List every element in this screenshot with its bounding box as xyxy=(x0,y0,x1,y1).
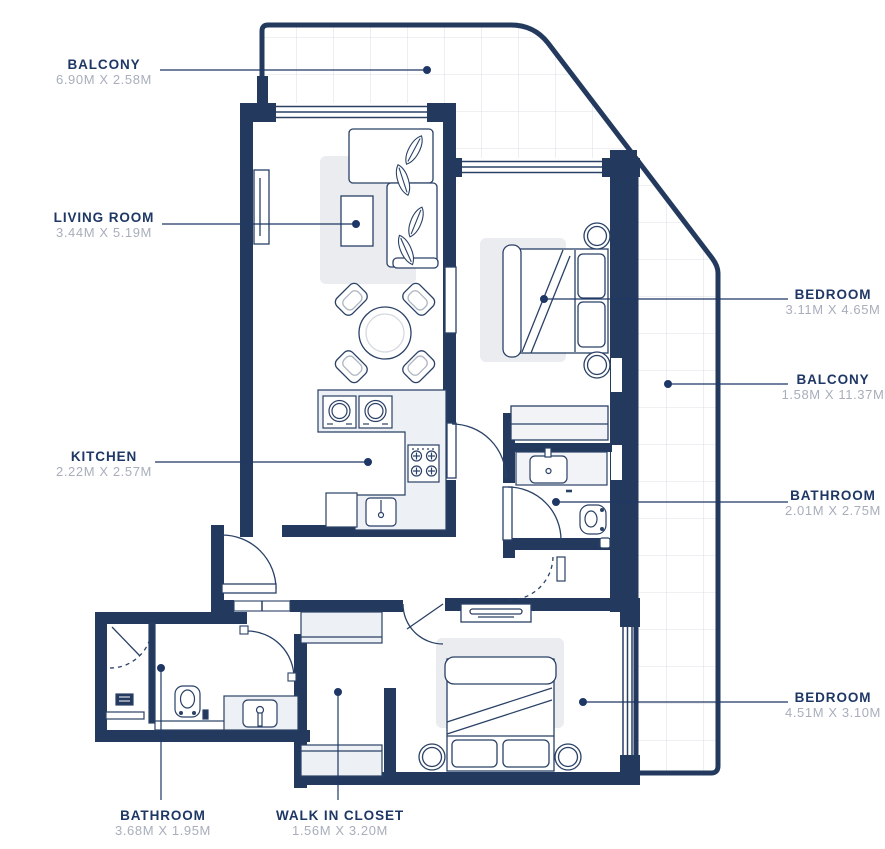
hallway-threshold xyxy=(234,601,290,611)
shower2-door xyxy=(110,627,152,668)
bedroom1-furniture xyxy=(503,223,610,440)
tv-panel-east xyxy=(445,267,456,333)
nightstand xyxy=(584,352,610,378)
bed2-duvet-end xyxy=(445,657,556,684)
bathroom2-fixtures xyxy=(106,624,298,730)
nightstand xyxy=(584,223,610,249)
dresser-tv xyxy=(461,604,531,622)
bathroom1-door xyxy=(503,487,561,540)
kitchen-sink xyxy=(366,498,396,526)
shower-room-door xyxy=(509,556,553,600)
floor-plan-page: BALCONY 6.90M X 2.58M LIVING ROOM 3.44M … xyxy=(0,0,885,849)
bedroom1-wardrobe xyxy=(511,406,608,440)
bed1-pillow xyxy=(578,254,605,298)
nightstand xyxy=(419,744,445,770)
shower2-divider xyxy=(149,624,155,723)
bathroom2-door xyxy=(240,626,296,681)
kitchen-lobby-door xyxy=(447,423,506,478)
shower1-fixture xyxy=(557,557,565,581)
stove xyxy=(408,445,439,482)
dryer xyxy=(359,396,392,428)
dining-set xyxy=(333,281,437,385)
closet-wardrobe-top xyxy=(301,612,382,643)
living-hallway-door xyxy=(222,535,276,593)
closet-wardrobe-bottom xyxy=(301,745,382,776)
bed1-pillow2 xyxy=(578,302,605,347)
floor-plan-svg xyxy=(0,0,885,849)
bed1-bench xyxy=(503,245,521,357)
nightstand xyxy=(555,744,581,770)
tv-panel-west xyxy=(254,170,269,244)
toilet-brush xyxy=(203,710,208,719)
leader-kitchen xyxy=(155,459,371,466)
bathroom1-fixtures xyxy=(516,448,610,581)
bedroom2-window xyxy=(623,627,632,755)
washer xyxy=(323,396,356,428)
bathroom2-ledge xyxy=(155,721,225,730)
vanity2-sink xyxy=(243,700,277,727)
closet-furniture xyxy=(301,612,382,776)
bed2-pillow xyxy=(452,740,497,767)
shower2-bench xyxy=(106,712,144,719)
toilet2 xyxy=(175,686,200,717)
shower2-drain xyxy=(116,694,133,705)
bed2-pillow2 xyxy=(503,740,549,767)
fridge xyxy=(326,493,357,527)
kitchen-furniture xyxy=(318,390,446,530)
bedroom2-door xyxy=(403,604,443,644)
